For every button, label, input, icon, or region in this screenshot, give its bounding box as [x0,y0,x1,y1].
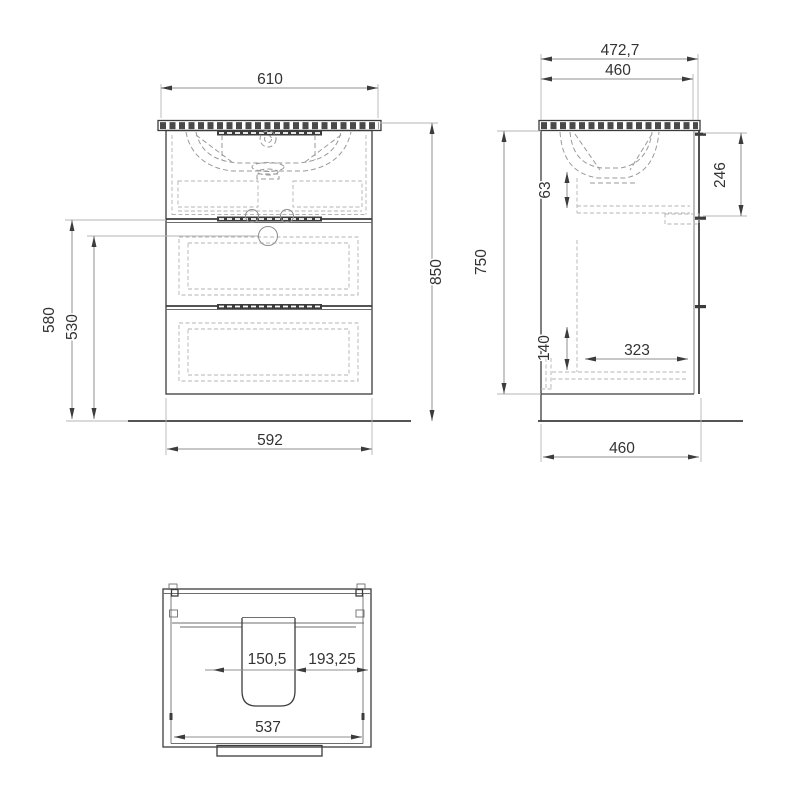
svg-text:193,25: 193,25 [308,651,355,668]
dim-front-height-overall: 850 [380,123,445,421]
svg-text:530: 530 [64,314,81,340]
dim-front-height-530: 530 [64,236,258,419]
svg-text:472,7: 472,7 [601,42,640,59]
side-basin-hidden-lines [560,132,659,183]
svg-text:323: 323 [624,342,650,359]
drawing-svg: 610 850 580 530 [0,0,800,800]
svg-text:63: 63 [537,181,554,198]
dim-side-height-body: 750 [473,131,541,394]
dim-front-width-bottom: 592 [166,398,372,455]
svg-text:246: 246 [712,162,729,188]
svg-text:592: 592 [257,432,283,449]
dim-side-depth-inner: 323 [585,342,688,362]
svg-text:750: 750 [473,249,490,275]
front-handle-grooves [217,131,322,310]
svg-text:610: 610 [257,71,283,88]
svg-text:850: 850 [428,259,445,285]
dim-side-height-top-drawer: 246 [703,133,747,216]
svg-text:537: 537 [255,719,281,736]
dim-top-cutout: 150,5 193,25 [205,651,368,673]
svg-text:460: 460 [609,440,635,457]
top-view: 150,5 193,25 537 [163,584,371,756]
technical-drawing: 610 850 580 530 [0,0,800,800]
front-view: 610 850 580 530 [41,71,445,455]
svg-text:580: 580 [41,307,58,333]
dim-side-depth-countertop: 472,7 [541,42,698,120]
side-hidden-drawer-boxes [541,178,699,389]
dim-front-width-top: 610 [161,71,378,118]
svg-text:140: 140 [536,335,553,361]
svg-text:150,5: 150,5 [248,651,287,668]
dim-side-clearance-sink: 63 [537,172,570,208]
dim-side-depth-bottom: 460 [541,398,701,462]
front-basin-hidden-lines [186,131,351,179]
svg-text:460: 460 [605,62,631,79]
dim-side-depth-cabinet: 460 [541,62,693,120]
dim-top-inner-width: 537 [174,719,362,740]
side-view: 472,7 460 750 246 [473,42,747,462]
dim-front-height-580: 580 [41,220,166,419]
front-cabinet-body [166,131,372,395]
